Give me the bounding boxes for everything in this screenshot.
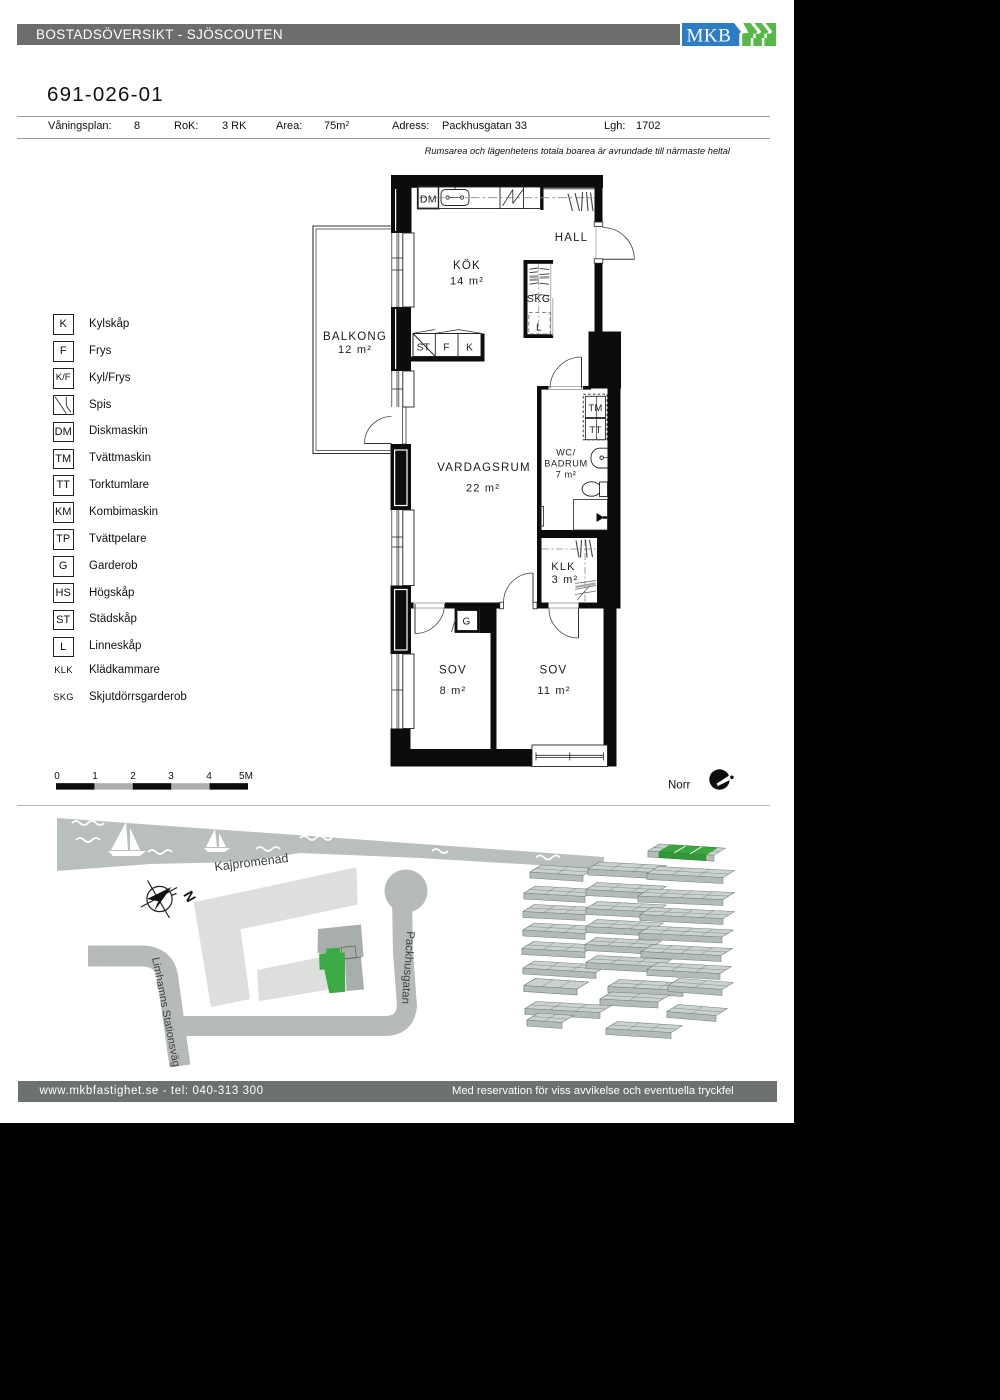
svg-text:TM: TM (588, 403, 602, 414)
svg-text:F: F (443, 343, 450, 354)
svg-text:WC/: WC/ (556, 448, 576, 458)
svg-text:SOV: SOV (540, 665, 568, 677)
svg-text:2: 2 (130, 771, 136, 782)
svg-text:BADRUM: BADRUM (544, 459, 587, 469)
svg-text:7 m²: 7 m² (556, 470, 577, 480)
svg-text:8 m²: 8 m² (440, 685, 467, 697)
svg-text:3: 3 (168, 771, 174, 782)
svg-text:MKB: MKB (687, 25, 732, 46)
svg-text:5M: 5M (239, 771, 253, 782)
svg-text:11 m²: 11 m² (537, 685, 570, 697)
svg-text:4: 4 (206, 771, 212, 782)
svg-text:22 m²: 22 m² (466, 483, 500, 495)
svg-text:0: 0 (54, 771, 60, 782)
svg-text:KLK: KLK (551, 561, 575, 573)
svg-text:12 m²: 12 m² (338, 344, 372, 356)
svg-text:K: K (466, 343, 474, 354)
svg-text:SKG: SKG (527, 293, 551, 305)
svg-text:L: L (536, 322, 543, 334)
svg-text:14 m²: 14 m² (450, 276, 484, 288)
svg-text:SOV: SOV (439, 665, 467, 677)
svg-text:Norr: Norr (668, 780, 691, 792)
svg-text:DM: DM (420, 194, 437, 206)
svg-text:G: G (463, 617, 472, 628)
svg-text:1: 1 (92, 771, 98, 782)
svg-text:HALL: HALL (555, 232, 589, 244)
svg-text:TT: TT (589, 425, 601, 436)
svg-text:KÖK: KÖK (453, 260, 481, 272)
svg-text:3 m²: 3 m² (552, 574, 579, 586)
svg-text:VARDAGSRUM: VARDAGSRUM (437, 462, 531, 474)
svg-text:BALKONG: BALKONG (323, 331, 387, 343)
svg-text:ST: ST (417, 343, 431, 354)
